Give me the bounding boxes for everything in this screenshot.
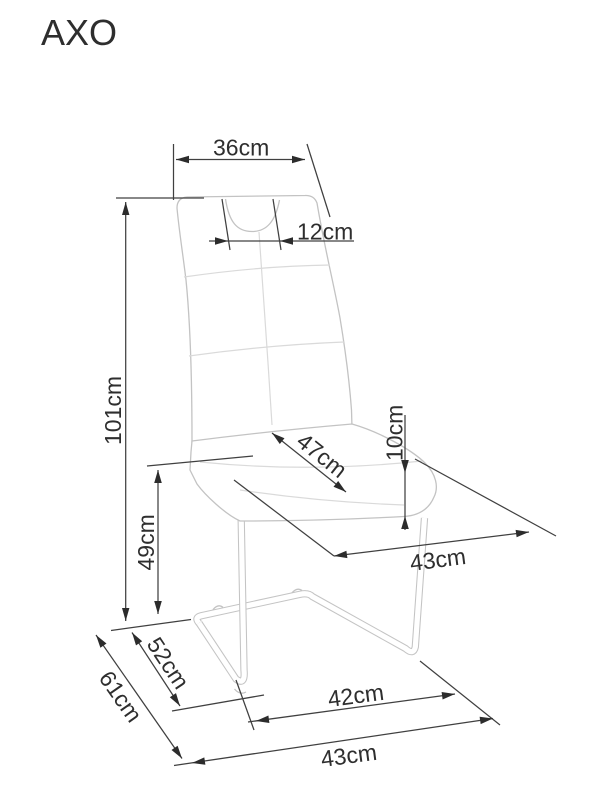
svg-text:42cm: 42cm [326, 679, 385, 712]
svg-text:49cm: 49cm [133, 514, 159, 570]
svg-text:43cm: 43cm [408, 543, 467, 576]
svg-text:12cm: 12cm [297, 219, 353, 245]
svg-text:AXO: AXO [41, 12, 117, 53]
svg-text:43cm: 43cm [319, 739, 378, 772]
svg-text:36cm: 36cm [213, 135, 269, 161]
svg-text:101cm: 101cm [100, 376, 126, 445]
svg-text:10cm: 10cm [382, 405, 408, 461]
svg-text:52cm: 52cm [142, 632, 195, 693]
